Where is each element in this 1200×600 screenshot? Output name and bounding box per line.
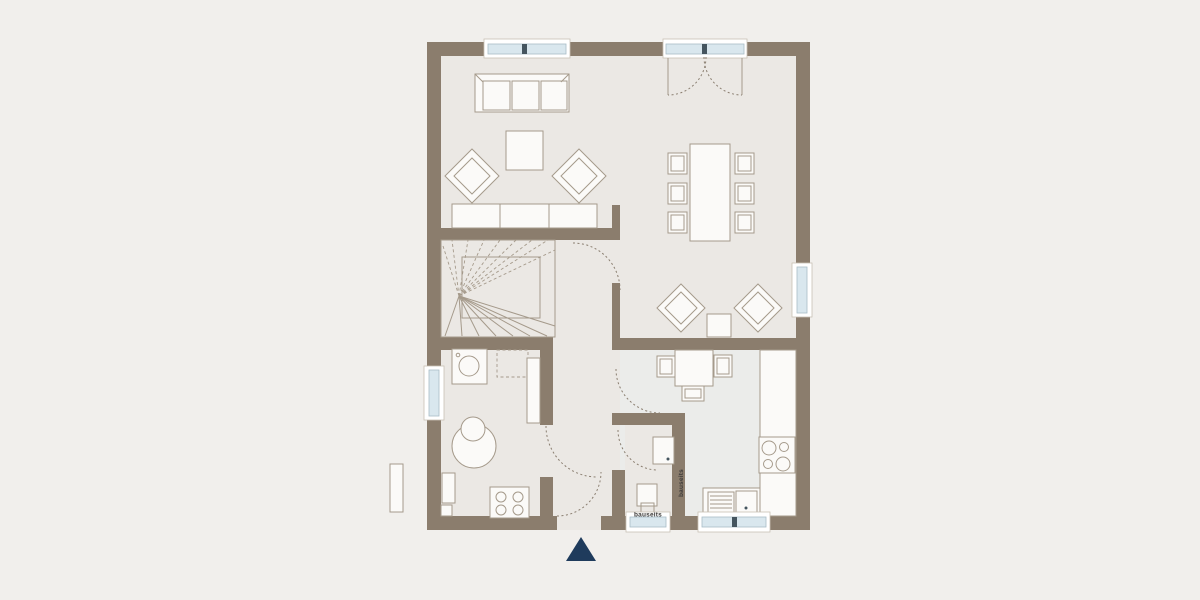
wall-utility-top xyxy=(441,337,553,350)
floor-plan-canvas: bauseits bauseits xyxy=(0,0,1200,600)
wall-pillar xyxy=(612,205,620,228)
wall-utility-right-upper xyxy=(540,350,553,425)
wall-bath-top xyxy=(612,413,685,425)
wall-bath-left xyxy=(612,470,625,516)
floor-plan-drawing: bauseits bauseits xyxy=(0,0,1200,600)
shelf-left xyxy=(442,473,455,503)
exterior-element xyxy=(390,464,403,512)
wall-living-stairs xyxy=(441,228,620,240)
small-unit xyxy=(441,505,452,516)
kitchen-table xyxy=(675,350,713,386)
kitchen-counter-right xyxy=(760,350,796,516)
window-bottom-kitchen xyxy=(698,512,770,532)
wall-hall-dining xyxy=(612,283,620,345)
bath-sink-icon xyxy=(653,437,674,464)
tall-cabinet xyxy=(527,358,540,423)
wall-utility-right-lower xyxy=(540,477,553,516)
sofa-bottom xyxy=(452,204,597,228)
coffee-table xyxy=(506,131,543,170)
window-top-living xyxy=(484,39,570,58)
wall-dining-kitchen xyxy=(612,338,796,350)
cooktop-icon xyxy=(759,437,795,473)
entrance-marker-icon xyxy=(566,537,596,561)
bauseits-label-horizontal: bauseits xyxy=(634,512,662,519)
window-right-dining xyxy=(792,263,812,317)
washer-icon xyxy=(452,349,487,384)
wall-left xyxy=(427,42,441,530)
side-table xyxy=(707,314,731,337)
entrance-opening xyxy=(557,516,601,530)
bauseits-label-vertical: bauseits xyxy=(678,469,685,497)
cooktop-utility-icon xyxy=(490,487,529,518)
dining-table xyxy=(690,144,730,241)
window-left-utility xyxy=(424,366,444,420)
sofa-three-seat xyxy=(475,74,569,112)
